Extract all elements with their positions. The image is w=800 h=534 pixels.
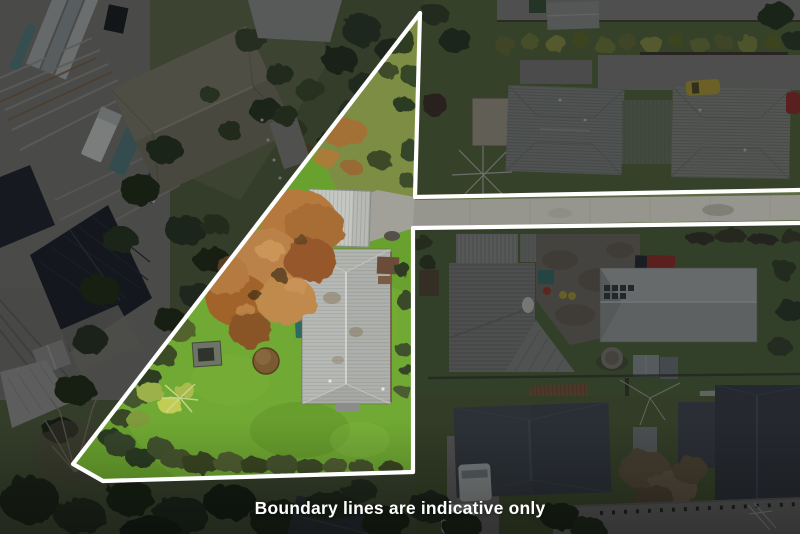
screenshot-root: Boundary lines are indicative only bbox=[0, 0, 800, 534]
garden-shed bbox=[192, 341, 222, 367]
deck bbox=[377, 257, 400, 275]
aerial-photo bbox=[0, 0, 800, 534]
caption: Boundary lines are indicative only bbox=[0, 498, 800, 519]
